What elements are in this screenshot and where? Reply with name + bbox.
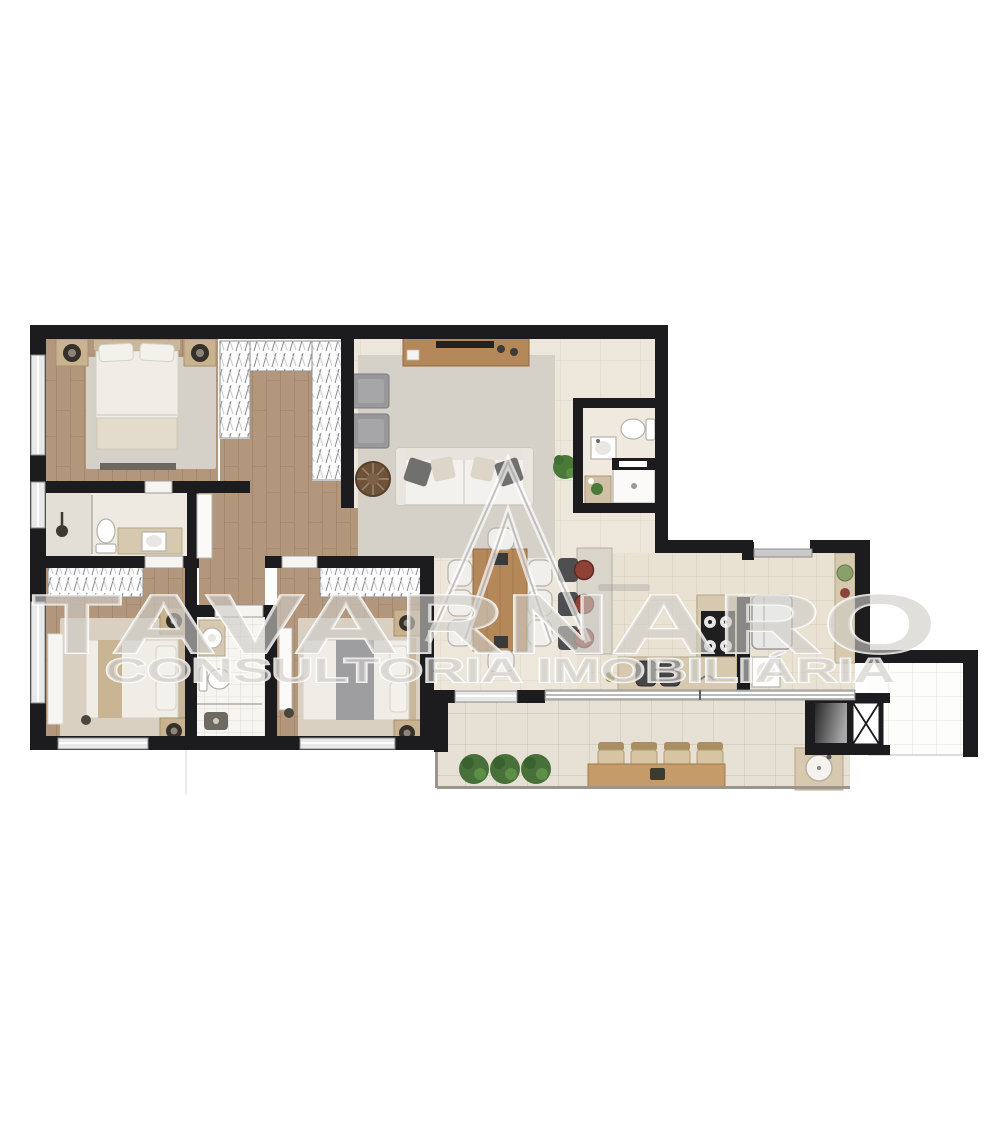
planter: [521, 754, 551, 784]
armchair: [351, 374, 389, 408]
exterior-wall-top: [32, 325, 668, 339]
door-opening: [145, 481, 172, 493]
master-shower-floor: [46, 493, 91, 556]
window: [31, 355, 45, 455]
coffee-table: [356, 462, 390, 496]
guest-toilet-wall: [573, 398, 655, 408]
floor-plan-screenshot: TAVARNARO CONSULTORIA IMOBILIÁRIA: [0, 0, 1000, 1126]
window: [455, 691, 517, 702]
exterior-wall-right-upper: [655, 325, 668, 547]
tv-sideboard: [403, 337, 529, 366]
duct-shaft: [851, 701, 881, 746]
balcony-stool: [598, 742, 624, 767]
cabinet-with-plant: [585, 476, 611, 505]
armchair: [351, 414, 389, 448]
window: [300, 738, 395, 749]
shower-head: [56, 525, 68, 537]
window: [58, 738, 148, 749]
counter-decor: [650, 768, 665, 780]
door-opening: [145, 556, 183, 568]
master-bed: [94, 340, 180, 449]
door-opening: [282, 556, 317, 568]
entry-door-hinge: [742, 542, 754, 560]
closet-corridor-floor: [250, 371, 312, 481]
foot-bench: [100, 463, 176, 470]
railing: [437, 786, 805, 789]
floor-object: [284, 708, 294, 718]
floor-plan-image: TAVARNARO CONSULTORIA IMOBILIÁRIA: [0, 0, 1000, 1126]
grill: [814, 702, 848, 744]
pillow: [470, 456, 496, 482]
planter: [490, 754, 520, 784]
balcony-stool: [697, 742, 723, 767]
service-area: [812, 700, 882, 748]
tv: [436, 341, 494, 348]
planter: [459, 754, 489, 784]
watermark-tagline: CONSULTORIA IMOBILIÁRIA: [105, 652, 895, 690]
entry-door: [754, 549, 812, 557]
toilet: [621, 419, 655, 440]
hall-living-wall: [341, 339, 354, 508]
hall-open-door: [197, 494, 212, 558]
exterior-wall-right-lower: [963, 650, 978, 757]
pillow: [430, 456, 456, 482]
living-room: [351, 337, 577, 558]
balcony-stool: [631, 742, 657, 767]
window: [31, 482, 45, 528]
sliding-glass-door: [545, 690, 855, 700]
toilet: [96, 519, 116, 553]
balcony-stool: [664, 742, 690, 767]
floor-object: [81, 715, 91, 725]
